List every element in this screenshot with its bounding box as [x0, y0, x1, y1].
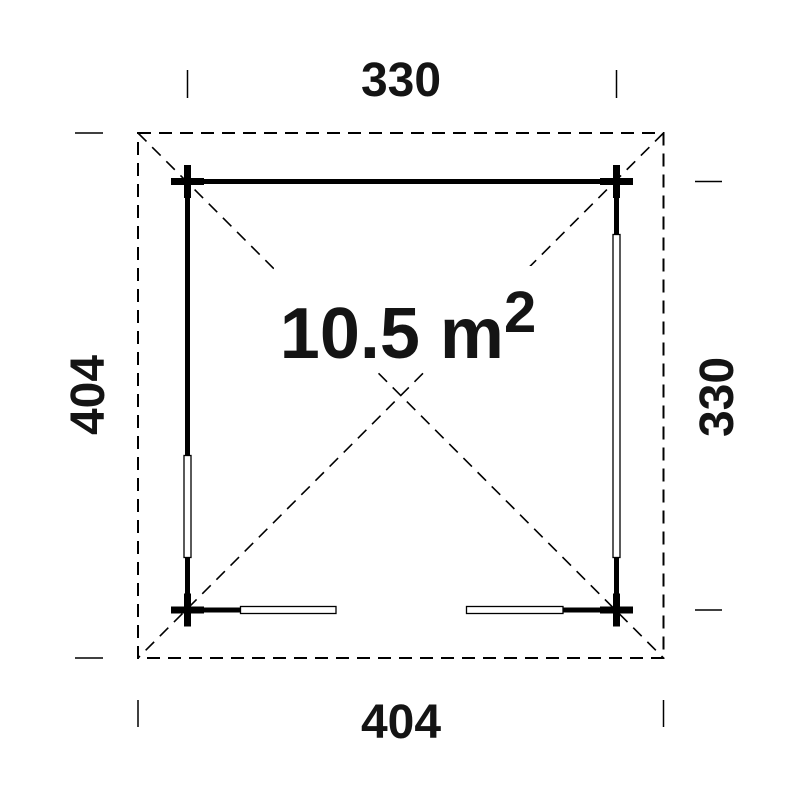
- floor-plan-drawing: 330 404 404 330 10.5 m2: [0, 0, 800, 800]
- area-label-superscript: 2: [504, 280, 536, 345]
- window-right: [613, 235, 620, 558]
- corner-post-top-right: [600, 165, 633, 198]
- corner-post-bottom-left: [171, 594, 204, 627]
- floor-plan-canvas: 330 404 404 330 10.5 m2: [0, 0, 800, 800]
- area-label-value: 10.5 m: [280, 294, 504, 374]
- dimension-label-right: 330: [691, 357, 744, 437]
- door-panel-left: [241, 607, 337, 614]
- dimension-label-left: 404: [62, 355, 115, 435]
- dimension-label-top: 330: [361, 54, 441, 107]
- area-label: 10.5 m2: [280, 280, 536, 374]
- door-panel-right: [467, 607, 564, 614]
- dimension-label-bottom: 404: [361, 696, 441, 749]
- window-left: [184, 456, 191, 558]
